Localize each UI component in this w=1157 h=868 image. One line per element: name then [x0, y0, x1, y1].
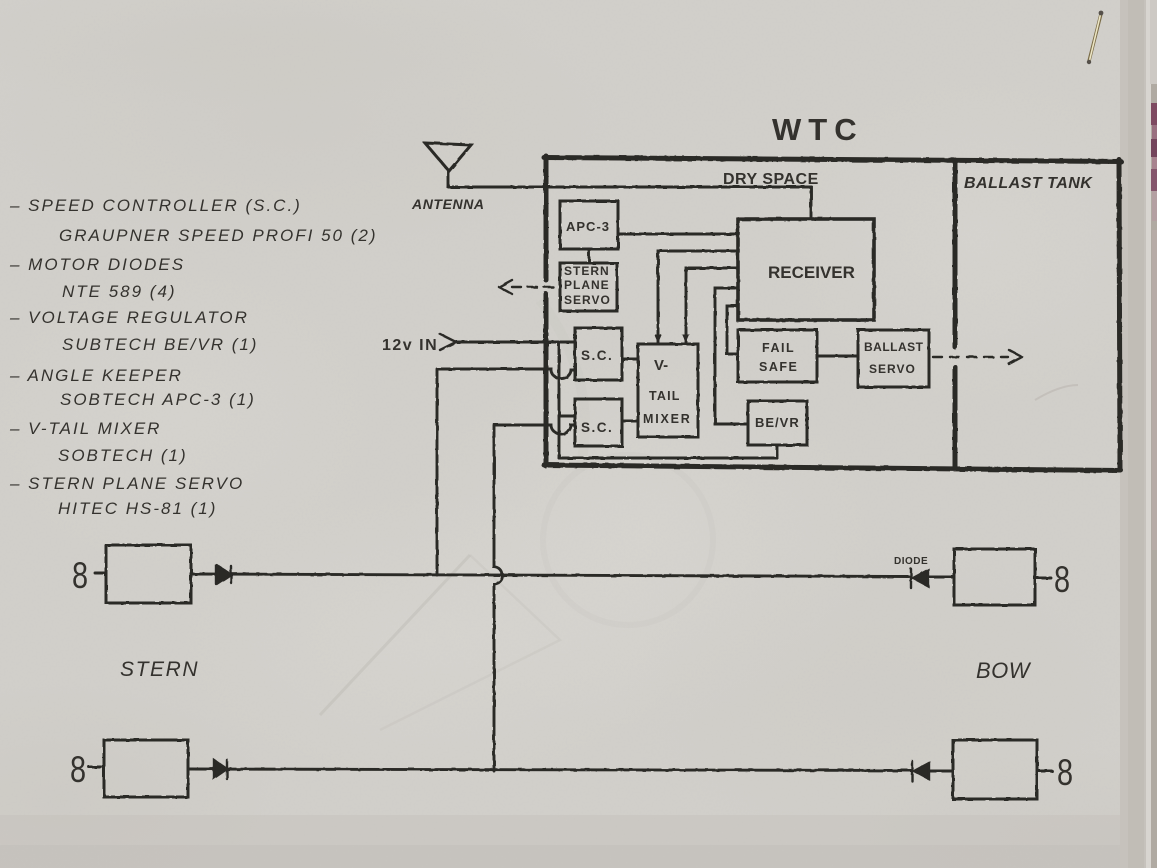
- svg-text:DRY SPACE: DRY SPACE: [723, 171, 819, 188]
- svg-text:SERVO: SERVO: [564, 293, 611, 307]
- svg-text:SOBTECH APC-3 (1): SOBTECH APC-3 (1): [60, 390, 256, 409]
- svg-text:– SPEED CONTROLLER (S.C.): – SPEED CONTROLLER (S.C.): [9, 196, 302, 215]
- svg-text:– STERN PLANE SERVO: – STERN PLANE SERVO: [9, 474, 244, 493]
- svg-text:V-: V-: [654, 357, 668, 374]
- svg-text:8: 8: [70, 750, 86, 791]
- svg-text:8: 8: [72, 556, 88, 597]
- svg-text:8: 8: [1057, 753, 1073, 794]
- svg-text:BOW: BOW: [976, 658, 1032, 683]
- svg-text:GRAUPNER SPEED PROFI 50 (2): GRAUPNER SPEED PROFI 50 (2): [59, 226, 378, 245]
- svg-text:FAIL: FAIL: [762, 341, 795, 355]
- svg-text:SUBTECH BE/VR (1): SUBTECH BE/VR (1): [62, 335, 258, 354]
- svg-text:S.C.: S.C.: [581, 420, 613, 435]
- svg-text:STERN: STERN: [564, 264, 610, 278]
- svg-text:WTC: WTC: [772, 112, 864, 147]
- svg-text:APC-3: APC-3: [566, 219, 610, 234]
- svg-text:BE/VR: BE/VR: [755, 415, 800, 430]
- svg-text:TAIL: TAIL: [649, 389, 681, 403]
- svg-text:– V-TAIL MIXER: – V-TAIL MIXER: [9, 419, 161, 438]
- svg-text:BALLAST: BALLAST: [864, 340, 924, 354]
- svg-text:ANTENNA: ANTENNA: [411, 196, 485, 212]
- svg-text:8: 8: [1054, 560, 1070, 601]
- svg-text:MIXER: MIXER: [643, 412, 692, 426]
- svg-text:– MOTOR DIODES: – MOTOR DIODES: [9, 255, 185, 274]
- svg-text:S.C.: S.C.: [581, 348, 613, 363]
- svg-text:SERVO: SERVO: [869, 362, 916, 376]
- svg-text:STERN: STERN: [120, 658, 199, 681]
- svg-text:RECEIVER: RECEIVER: [768, 263, 855, 282]
- svg-text:SAFE: SAFE: [759, 360, 798, 374]
- svg-text:HITEC HS-81 (1): HITEC HS-81 (1): [58, 499, 217, 518]
- svg-text:– ANGLE KEEPER: – ANGLE KEEPER: [9, 366, 183, 385]
- svg-text:SOBTECH (1): SOBTECH (1): [58, 446, 188, 465]
- svg-text:– VOLTAGE REGULATOR: – VOLTAGE REGULATOR: [9, 308, 249, 327]
- svg-text:12v IN: 12v IN: [382, 337, 438, 354]
- svg-text:NTE 589 (4): NTE 589 (4): [62, 282, 177, 301]
- svg-text:PLANE: PLANE: [564, 278, 610, 292]
- svg-text:BALLAST TANK: BALLAST TANK: [964, 175, 1093, 192]
- svg-text:DIODE: DIODE: [894, 556, 928, 567]
